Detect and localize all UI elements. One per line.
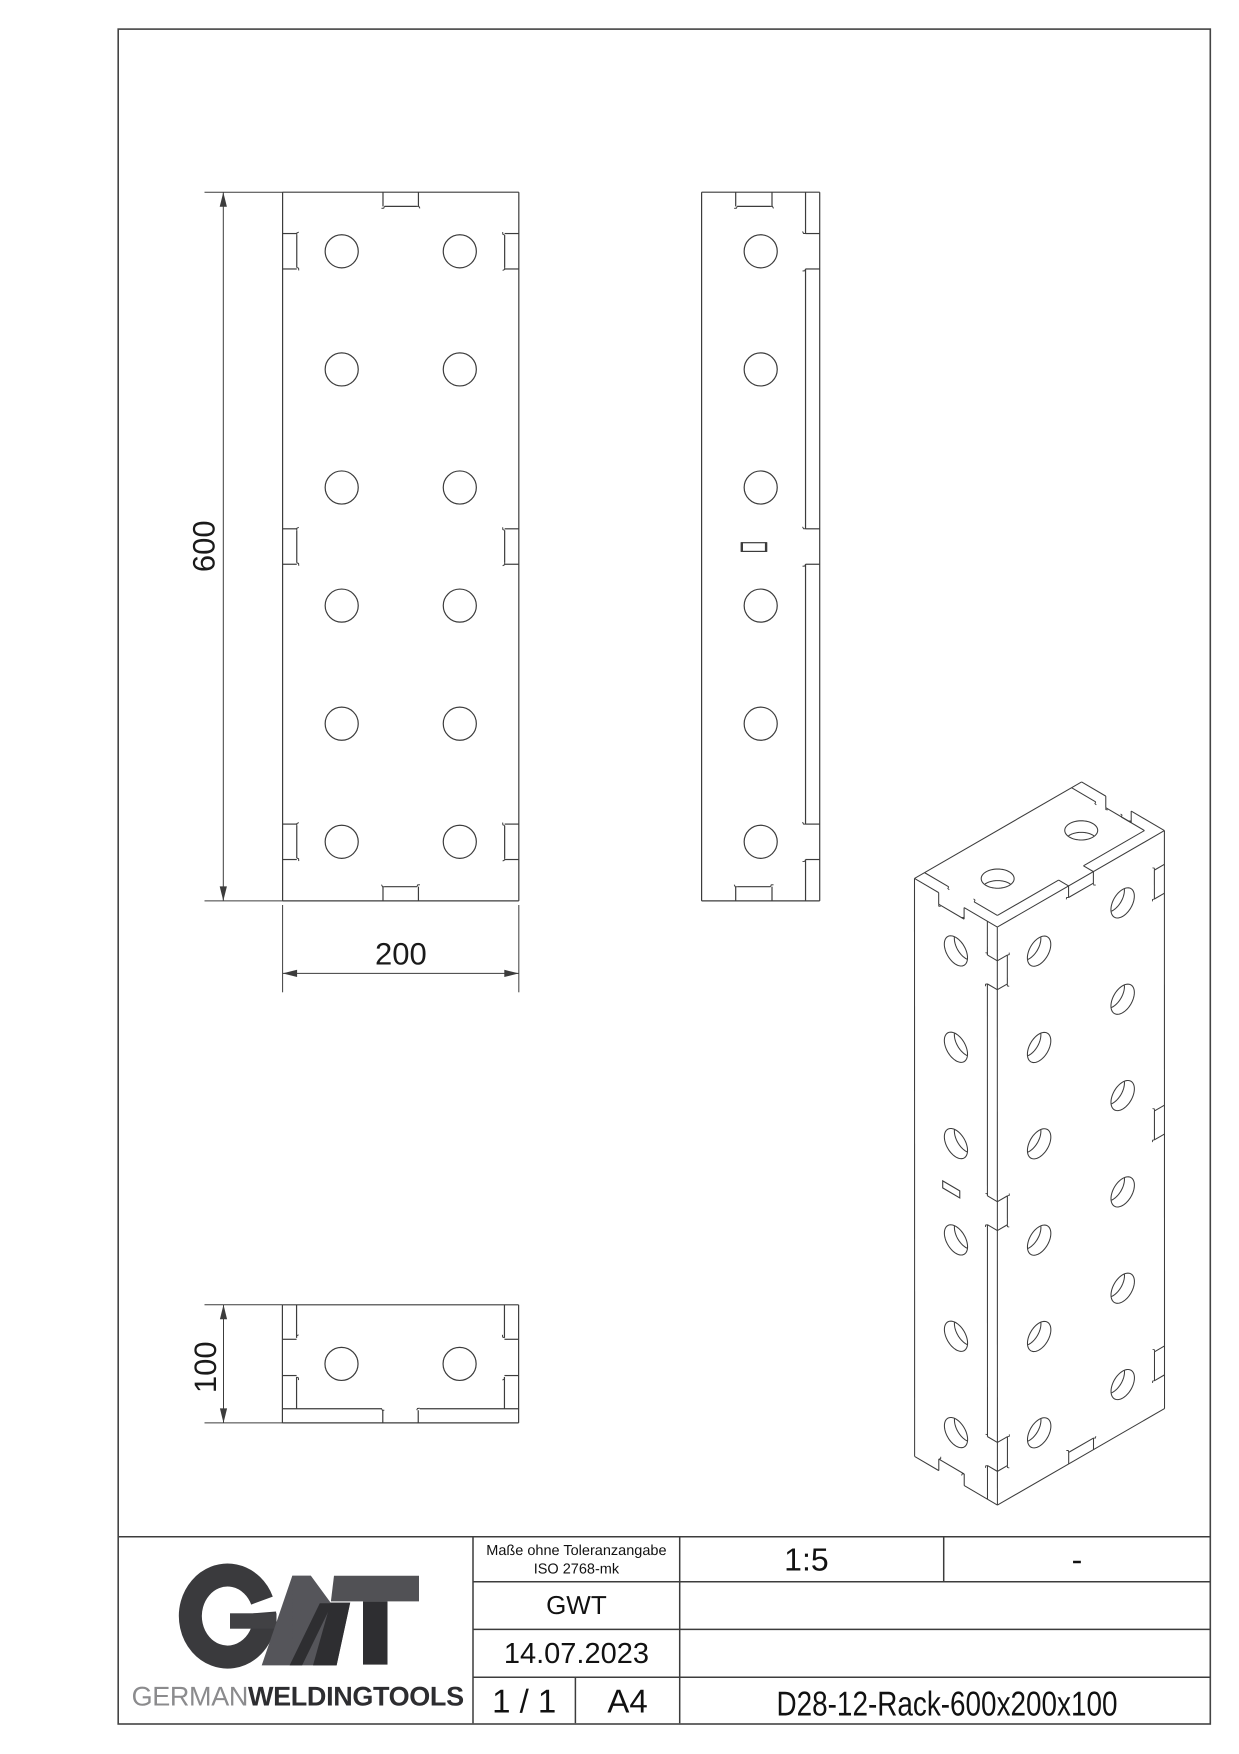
- svg-text:1 / 1: 1 / 1: [492, 1683, 556, 1720]
- svg-text:A4: A4: [607, 1683, 647, 1720]
- svg-text:ISO 2768-mk: ISO 2768-mk: [534, 1562, 620, 1578]
- svg-text:GERMANWELDINGTOOLS: GERMANWELDINGTOOLS: [132, 1682, 465, 1712]
- svg-text:1:5: 1:5: [784, 1542, 828, 1578]
- svg-text:-: -: [1072, 1542, 1083, 1578]
- svg-text:100: 100: [188, 1341, 223, 1393]
- svg-text:GWT: GWT: [546, 1590, 607, 1620]
- svg-text:14.07.2023: 14.07.2023: [504, 1638, 649, 1670]
- svg-text:D28-12-Rack-600x200x100: D28-12-Rack-600x200x100: [777, 1686, 1118, 1724]
- svg-text:600: 600: [186, 520, 221, 572]
- svg-text:200: 200: [375, 937, 427, 972]
- svg-text:Maße ohne Toleranzangabe: Maße ohne Toleranzangabe: [486, 1543, 666, 1559]
